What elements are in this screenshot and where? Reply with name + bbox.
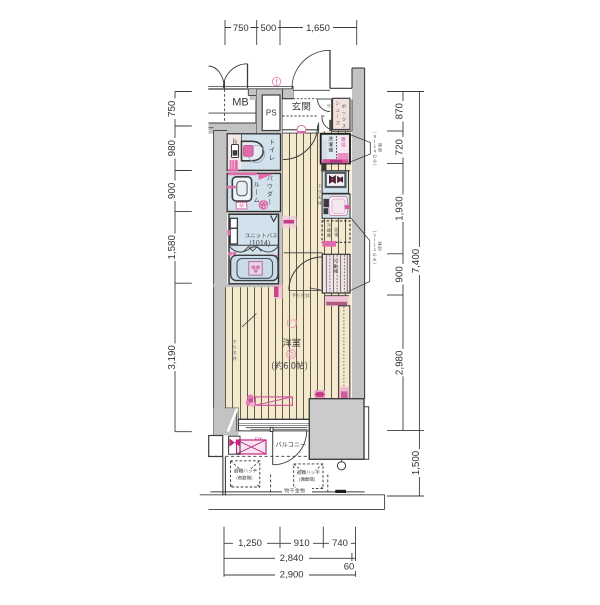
svg-text:60: 60 xyxy=(344,562,355,573)
svg-text:1,930: 1,930 xyxy=(395,196,406,221)
svg-text:2,900: 2,900 xyxy=(280,570,304,581)
svg-text:2,980: 2,980 xyxy=(395,350,406,375)
svg-text:2,840: 2,840 xyxy=(280,553,304,564)
svg-text:500: 500 xyxy=(260,23,276,34)
svg-text:MB: MB xyxy=(232,96,249,108)
svg-text:750: 750 xyxy=(167,100,178,117)
svg-text:FIX: FIX xyxy=(255,437,263,443)
svg-text:980: 980 xyxy=(167,139,178,156)
svg-text:740: 740 xyxy=(332,538,348,549)
svg-text:7,400: 7,400 xyxy=(411,248,422,273)
svg-text:1,580: 1,580 xyxy=(167,234,178,259)
svg-text:1,500: 1,500 xyxy=(411,450,422,475)
svg-text:M: M xyxy=(239,203,243,209)
svg-text:1,650: 1,650 xyxy=(306,23,330,34)
svg-text:3,190: 3,190 xyxy=(167,345,178,370)
svg-text:1,250: 1,250 xyxy=(238,538,262,549)
svg-text:PS: PS xyxy=(266,109,277,118)
svg-text:900: 900 xyxy=(395,266,406,283)
svg-text:720: 720 xyxy=(395,138,406,155)
svg-text:750: 750 xyxy=(233,23,249,34)
svg-text:910: 910 xyxy=(294,538,310,549)
svg-text:900: 900 xyxy=(167,182,178,199)
svg-text:870: 870 xyxy=(395,102,406,119)
